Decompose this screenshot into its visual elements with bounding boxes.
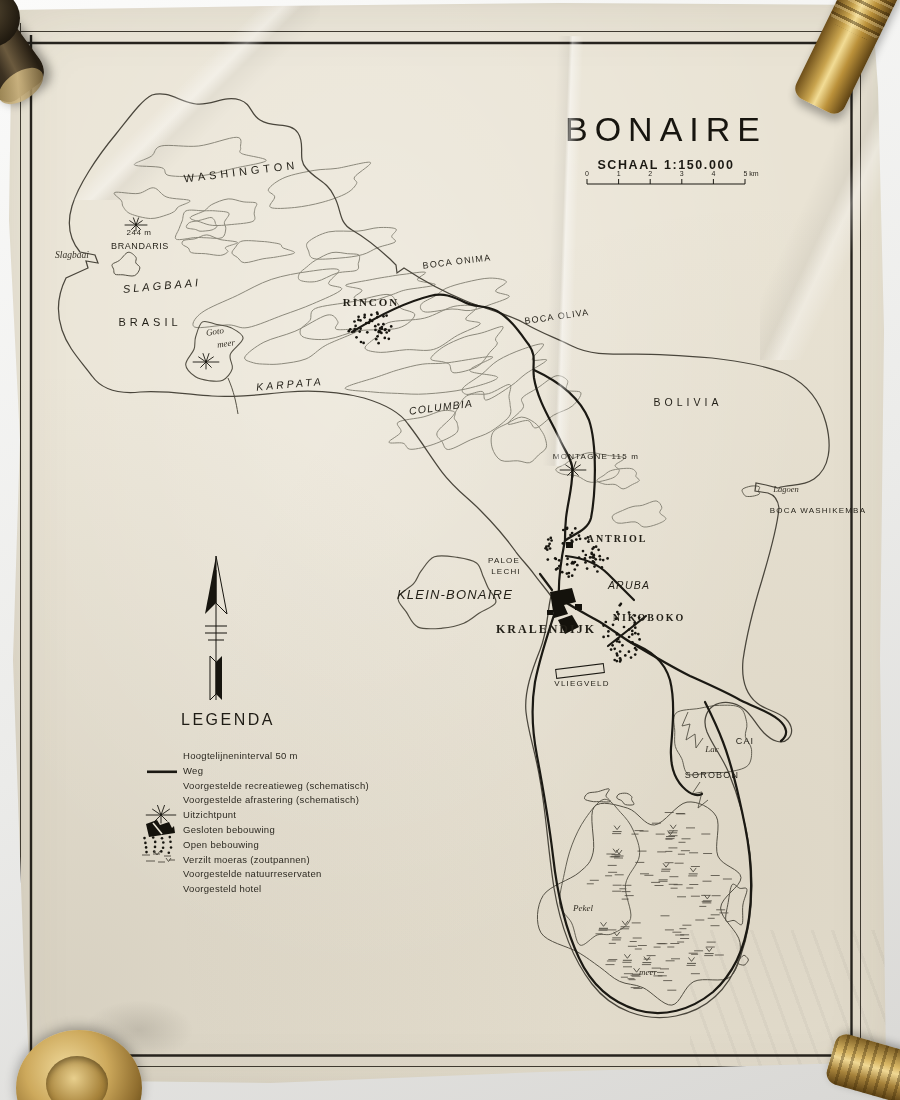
rincon-dots: [382, 323, 385, 326]
antriol-dots: [554, 557, 557, 560]
legend-open-settlement-dot: [161, 837, 164, 840]
rincon-dots: [347, 330, 350, 333]
contour-loop: [193, 269, 342, 328]
rincon-dots: [384, 329, 387, 332]
map-label-antriol-17: ANTRIOL: [587, 534, 648, 544]
map-label-sorobon-27: SOROBON: [685, 771, 739, 780]
nikoboko-dots: [616, 654, 619, 657]
rincon-dots: [353, 328, 356, 331]
antriol-dots: [550, 539, 553, 542]
airstrip: [556, 664, 605, 679]
antriol-east-dots: [598, 555, 601, 558]
nikoboko-dots: [615, 660, 618, 663]
map-label-244-m-1: 244 m: [126, 229, 151, 237]
nikoboko-dots: [607, 635, 610, 638]
legend-open-settlement-dot: [145, 851, 148, 854]
legend-open-settlement-dot: [152, 836, 155, 839]
open-settlement-dots: [347, 311, 641, 663]
antriol-dots: [566, 557, 569, 560]
antriol-dots: [578, 534, 581, 537]
antriol-dots: [566, 563, 569, 566]
nikoboko-dots: [634, 653, 637, 656]
contour-loop: [612, 501, 666, 527]
viewpoint-symbols: [125, 218, 587, 824]
rincon-dots: [368, 321, 371, 324]
nikoboko-dots: [618, 641, 621, 644]
antriol-dots: [576, 564, 579, 567]
antriol-dots: [575, 538, 578, 541]
scale-tick-label: 0: [572, 170, 602, 177]
rincon-dots: [363, 314, 366, 317]
antriol-dots: [547, 545, 550, 548]
legend-open-settlement-dot: [168, 851, 171, 854]
legend-open-settlement-dot: [169, 836, 172, 839]
antriol-east-dots: [594, 558, 597, 561]
nikoboko-dots: [634, 626, 637, 629]
rincon-dots: [355, 336, 358, 339]
margin-dimension-note: 60 cm 30 cm: [0, 430, 20, 610]
north-arrow: [205, 556, 227, 700]
map-label-klein-bonaire-21: KLEIN-BONAIRE: [397, 588, 513, 601]
antriol-dots: [546, 548, 549, 551]
map-label-lechi-20: LECHI: [491, 568, 521, 576]
rincon-dots: [376, 335, 379, 338]
antriol-dots: [571, 574, 574, 577]
contour-loop: [175, 210, 229, 240]
rincon-dots: [358, 330, 361, 333]
antriol-dots: [546, 558, 549, 561]
legend-item-none: Voorgestelde recreatieweg (schematisch): [183, 780, 369, 791]
kralendijk-built-block: [550, 588, 576, 618]
legend-item-none: Voorgestelde afrastering (schematisch): [183, 794, 359, 805]
rincon-dots: [390, 325, 393, 328]
antriol-east-dots: [595, 545, 598, 548]
contour-loop: [232, 241, 295, 263]
antriol-dots: [562, 529, 565, 532]
rincon-dots: [374, 325, 377, 328]
rincon-dots: [387, 337, 390, 340]
rincon-dots: [363, 316, 366, 319]
nikoboko-dots: [638, 638, 641, 641]
contour-loop: [190, 199, 257, 226]
nikoboko-dots: [637, 633, 640, 636]
islet: [617, 793, 634, 805]
nikoboko-dots: [621, 644, 624, 647]
nikoboko-dots: [602, 624, 605, 627]
rincon-dots: [366, 331, 369, 334]
map-label-meer-29: meer: [639, 968, 657, 977]
antriol-dots: [548, 542, 551, 545]
road-south-loop: [533, 606, 752, 1013]
map-label-cai-26: CAI: [736, 737, 755, 746]
map-label-nikoboko-23: NIKOBOKO: [613, 613, 686, 623]
nikoboko-dots: [619, 660, 622, 663]
legend-open-settlement-dot: [160, 850, 163, 853]
legend-open-settlement-dot: [154, 846, 157, 849]
legend-closed-settlement-symbol: [146, 820, 175, 837]
slagbaai-lagoon: [112, 252, 140, 276]
legend-item-salt-marsh: Verzilt moeras (zoutpannen): [183, 854, 310, 865]
map-label-brasil-5: BRASIL: [118, 317, 181, 328]
legend-open-settlement-dot: [162, 847, 165, 850]
margin-note-top: 60 cm: [5, 430, 15, 458]
legend-open-settlement-dot: [145, 846, 148, 849]
legend-open-settlement-dot: [143, 837, 146, 840]
rincon-dots: [359, 327, 362, 330]
rincon-dots: [357, 315, 360, 318]
nikoboko-dots: [623, 626, 626, 629]
legend-item-closed-settlement: Gesloten bebouwing: [183, 824, 275, 835]
contour-loop: [491, 417, 546, 463]
scale-tick-label: 2: [635, 170, 665, 177]
rincon-dots: [360, 341, 363, 344]
rincon-dots: [365, 322, 368, 325]
antriol-dots: [558, 559, 561, 562]
map-label-brandaris-2: BRANDARIS: [111, 242, 169, 251]
scale-tick-label: 5 km: [736, 170, 766, 177]
antriol-east-dots: [606, 557, 609, 560]
antriol-dots: [561, 571, 564, 574]
antriol-dots: [584, 561, 587, 564]
nikoboko-dots: [619, 650, 622, 653]
outer-border-line: [12, 23, 870, 1075]
legend-item-none: Hoogtelijneninterval 50 m: [183, 750, 298, 761]
scale-tick-label: 1: [604, 170, 634, 177]
rincon-dots: [370, 313, 373, 316]
antriol-dots: [547, 538, 550, 541]
contour-loop: [431, 327, 503, 373]
antriol-dots: [582, 550, 585, 553]
nikoboko-dots: [633, 623, 636, 626]
scale-tick-label: 4: [698, 170, 728, 177]
legend-marsh-dashes: [142, 854, 175, 862]
north-arrow-fletch-left: [210, 656, 216, 700]
antriol-east-dots: [592, 554, 595, 557]
map-label-paloe-19: PALOE: [488, 557, 520, 565]
rincon-dots: [362, 342, 365, 345]
nikoboko-dots: [628, 628, 631, 631]
contour-loop: [114, 188, 190, 219]
antriol-east-dots: [599, 558, 602, 561]
contour-loop: [508, 376, 581, 428]
rincon-dots: [378, 330, 381, 333]
legend-item-open-settlement-dots: Open bebouwing: [183, 839, 259, 850]
antriol-dots: [566, 527, 569, 530]
rincon-dots: [385, 314, 388, 317]
nikoboko-dots: [631, 633, 634, 636]
rincon-dots: [380, 332, 383, 335]
antriol-dots: [579, 537, 582, 540]
rincon-dots: [385, 331, 388, 334]
antriol-east-dots: [601, 566, 604, 569]
nikoboko-dots: [612, 623, 615, 626]
legend-item-none: Voorgesteld hotel: [183, 883, 262, 894]
map-label-lac-25: Lac: [705, 745, 719, 754]
antriol-dots: [549, 547, 552, 550]
antriol-dots: [573, 568, 576, 571]
road-harbour-spur: [540, 574, 552, 590]
antriol-dots: [569, 534, 572, 537]
rincon-dots: [374, 329, 377, 332]
nikoboko-dots: [616, 640, 619, 643]
nikoboko-dots: [624, 654, 627, 657]
rincon-dots: [377, 342, 380, 345]
montagne-viewpoint-star: [560, 461, 587, 477]
antriol-east-dots: [593, 561, 596, 564]
nikoboko-dots: [631, 641, 634, 644]
nikoboko-dots: [604, 621, 607, 624]
map-label-montagne-115-m-14: MONTAGNE 115 m: [553, 453, 639, 461]
map-label-rincon-9: RINCON: [343, 297, 400, 308]
antriol-built-block: [566, 542, 573, 548]
antriol-east-dots: [592, 546, 595, 549]
legend-item-viewpoint-star: Uitzichtpunt: [183, 809, 236, 820]
antriol-east-dots: [593, 565, 596, 568]
antriol-dots: [566, 572, 569, 575]
antriol-dots: [584, 557, 587, 560]
antriol-dots: [562, 542, 565, 545]
kralendijk-built-block: [547, 610, 553, 615]
rincon-dots: [375, 338, 378, 341]
map-label-boca-washikemba-16: BOCA WASHIKEMBA: [770, 507, 866, 515]
legend-open-settlement-dot: [162, 841, 165, 844]
nikoboko-dots: [628, 636, 631, 639]
lac-peninsula: [682, 712, 703, 748]
contour-loop: [307, 227, 397, 259]
salt-marsh-symbols: [587, 813, 732, 991]
rincon-dots: [357, 319, 360, 322]
north-arrow-head-right: [216, 556, 227, 614]
scale-bar: [587, 179, 745, 184]
antriol-east-dots: [584, 554, 587, 557]
nikoboko-dots: [610, 648, 613, 651]
kralendijk-built-block: [575, 604, 582, 610]
legend-item-none: Voorgestelde natuurreservaten: [183, 868, 322, 879]
margin-note-bottom: 30 cm: [5, 522, 15, 550]
road-rincon-kralendijk: [352, 295, 572, 598]
antriol-dots: [555, 568, 558, 571]
islet: [726, 884, 747, 925]
rincon-dots: [382, 315, 385, 318]
rincon-dots: [388, 329, 391, 332]
antriol-east-dots: [597, 548, 600, 551]
nikoboko-dots: [617, 638, 620, 641]
contour-loop: [597, 468, 639, 489]
map-title: BONAIRE: [516, 110, 816, 149]
map-label-aruba-18: ARUBA: [608, 580, 650, 591]
nikoboko-dots: [620, 602, 623, 605]
antriol-dots: [589, 556, 592, 559]
rincon-dots: [354, 325, 357, 328]
nikoboko-dots: [613, 647, 616, 650]
antriol-dots: [574, 561, 577, 564]
nikoboko-dots: [634, 632, 637, 635]
map-label-vliegveld-24: VLIEGVELD: [554, 680, 609, 688]
map-label-lagoen-15: Lagoen: [773, 485, 799, 494]
map-label-pekel-28: Pekel: [573, 904, 593, 913]
legend-item-road-line: Weg: [183, 765, 203, 776]
antriol-dots: [586, 567, 589, 570]
nikoboko-dots: [628, 650, 631, 653]
rincon-dots: [377, 323, 380, 326]
double-arrow-icon: [3, 461, 17, 519]
legend-open-settlement-dot: [170, 846, 173, 849]
nikoboko-dots: [616, 633, 619, 636]
antriol-dots: [549, 537, 552, 540]
map-label-kralendijk-22: KRALENDIJK: [496, 623, 596, 635]
nikoboko-dots: [630, 656, 633, 659]
map-label-bolivia-13: BOLIVIA: [654, 397, 723, 408]
rincon-dots: [376, 316, 379, 319]
antriol-dots: [567, 575, 570, 578]
map-paper-sheet: BONAIRE SCHAAL 1:150.000 012345 km WASHI…: [0, 0, 900, 1100]
contour-loop: [345, 357, 498, 395]
legend-open-settlement-dot: [144, 842, 147, 845]
legend-open-settlement-dot: [169, 840, 172, 843]
airstrip-runway-outline: [556, 664, 605, 679]
rincon-dots: [383, 337, 386, 340]
north-arrow-head-left: [205, 556, 216, 614]
rincon-dots: [376, 311, 379, 314]
antriol-dots: [558, 565, 561, 568]
nikoboko-dots: [631, 630, 634, 633]
nikoboko-dots: [602, 636, 605, 639]
legend-title: LEGENDA: [181, 711, 275, 729]
map-label-slagbaai-3: Slagbaai: [55, 251, 89, 261]
antriol-east-dots: [596, 570, 599, 573]
nikoboko-dots: [611, 644, 614, 647]
legend-open-settlement-dot: [154, 841, 157, 844]
rincon-dots: [353, 320, 356, 323]
nikoboko-dots: [635, 648, 638, 651]
antriol-east-dots: [602, 559, 605, 562]
pekel-west-outline: [560, 799, 640, 945]
nikoboko-dots: [607, 630, 610, 633]
nikoboko-dots: [619, 657, 622, 660]
goto-viewpoint-star: [193, 353, 220, 369]
legend-viewpoint-star: [146, 805, 176, 823]
contour-loop: [389, 410, 458, 449]
antriol-dots: [574, 527, 577, 530]
photographed-map-scene: BONAIRE SCHAAL 1:150.000 012345 km WASHI…: [0, 0, 900, 1100]
contour-loop: [437, 384, 511, 449]
map-border: [12, 23, 870, 1075]
contour-loop: [245, 315, 359, 365]
contour-loop: [186, 217, 217, 231]
rincon-dots: [353, 330, 356, 333]
rincon-dots: [369, 319, 372, 322]
marsh-plant-glyphs: [599, 825, 714, 974]
rincon-dots: [379, 327, 382, 330]
scale-tick-label: 3: [667, 170, 697, 177]
antriol-dots: [578, 556, 581, 559]
north-arrow-fletch-right: [216, 656, 222, 700]
